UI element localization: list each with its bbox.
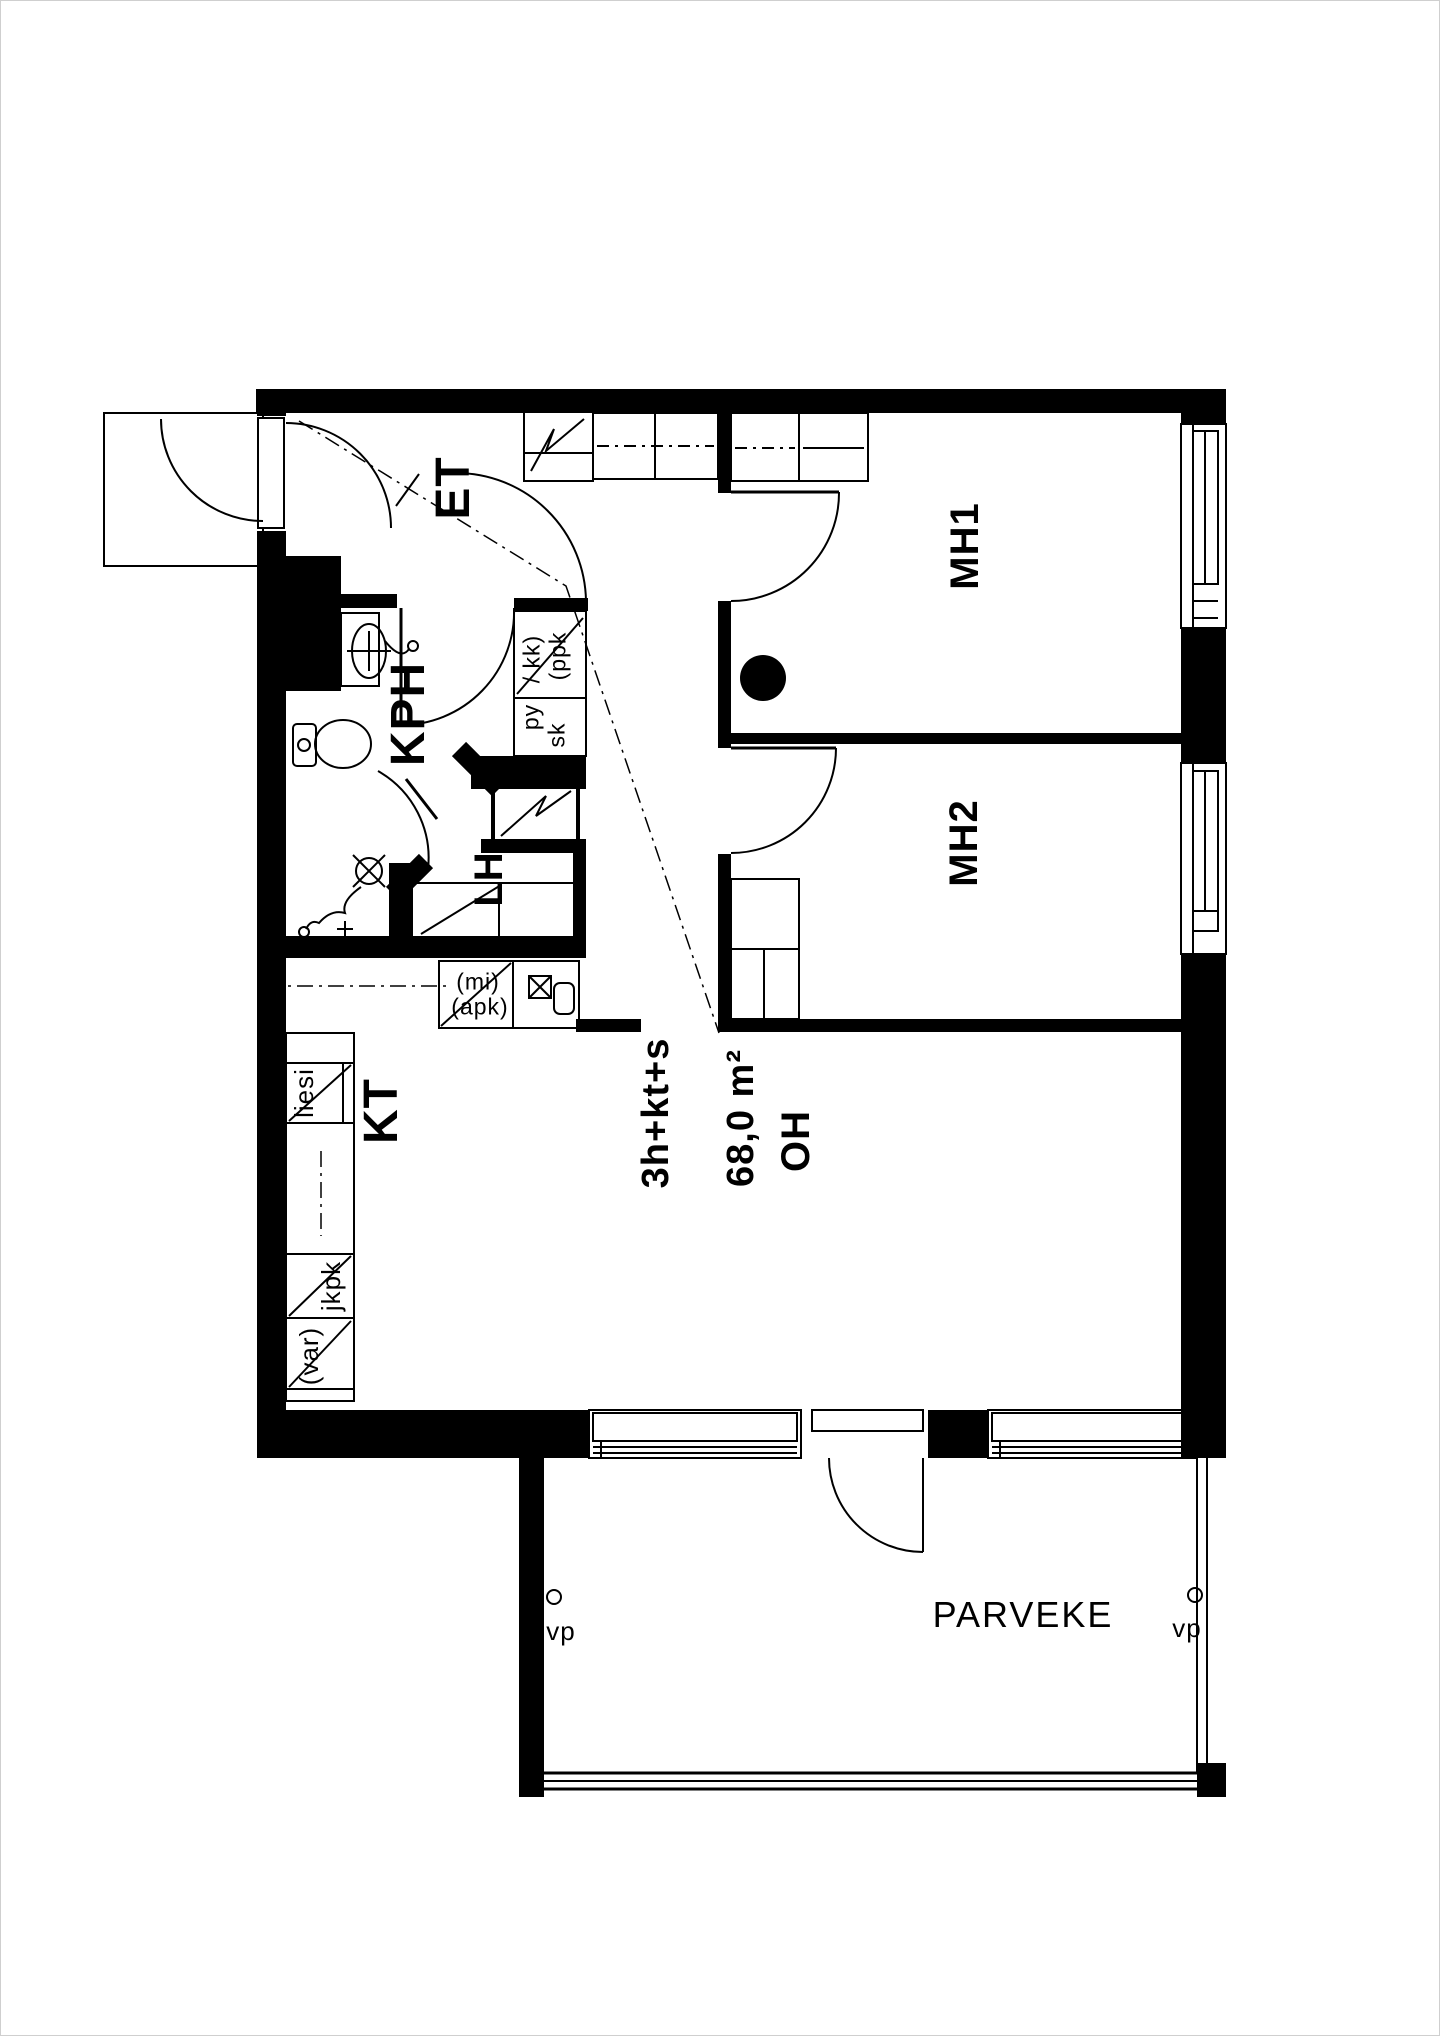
mh1-door-arc [731,492,839,601]
washbasin-drain [408,641,418,651]
wall-corridor-mh2-lower [718,854,731,1032]
window-oh-right-sill [992,1413,1191,1441]
window-oh-left [589,1410,801,1458]
wall-right-pier-mid [1181,628,1226,763]
label-parveke: PARVEKE [933,1597,1114,1633]
label-layout-type: 3h+kt+s [637,1038,675,1189]
wall-mh1-mh2 [718,733,1181,744]
balcony-drain-left [547,1590,561,1604]
toilet-icon [315,720,371,768]
label-mh2: MH2 [944,799,984,886]
label-kt: KT [358,1078,406,1144]
floor-plan-drawing [1,1,1440,2036]
wall-left [257,531,286,1458]
wall-diagonal-stub-upper [459,749,499,789]
wall-kph-lh-bottom [285,936,586,958]
balcony-drain-right [1188,1588,1202,1602]
wall-lh-right [573,844,586,958]
section-line-tick [396,474,419,506]
shower-hose [306,887,361,929]
label-apk: (apk) [451,996,508,1019]
label-oh: OH [776,1110,816,1172]
label-vp-right: vp [1172,1615,1201,1641]
entry-door-leaf [258,418,284,528]
window-mh2 [1181,763,1226,954]
label-liesi: liesi [291,1068,317,1118]
electrical-cabinet-zigzag-icon [531,419,584,471]
label-var: (var) [296,1327,322,1385]
kitchen-sink-basin [554,983,574,1014]
wall-right-top-corner [1181,389,1226,424]
wall-bottom-left [263,1410,589,1458]
label-lh: LH [469,851,509,906]
label-mi: (mi) [456,971,500,994]
balcony-door-sill [812,1410,923,1431]
mh2-door-arc [731,748,836,853]
wall-corridor-mh1-upper [718,413,731,493]
shower-head [299,927,309,937]
label-ppk: (ppk [547,632,570,681]
wall-kph-top [285,594,397,608]
label-vp-left: vp [546,1618,575,1644]
label-sk: sk [546,723,569,748]
wall-top [256,389,1226,413]
entry-landing-outline [104,413,263,566]
wall-balcony-left [519,1458,544,1797]
label-py: py [520,704,543,730]
wall-bottom-right-corner [1195,1410,1226,1458]
window-mh1 [1181,424,1226,628]
wall-shaft-block [284,556,341,691]
wall-bottom-pier [928,1410,988,1458]
wall-closet-cap [514,598,588,611]
window-oh-right [988,1410,1195,1458]
label-area: 68,0 m² [722,1049,760,1187]
column [740,655,786,701]
wall-left-upper [257,389,286,416]
sauna-door-arc [378,771,429,869]
window-oh-left-sill [593,1413,797,1441]
sauna-stove-zigzag-icon [501,791,571,836]
floor-plan-sheet: ET KPH LH KT MH1 MH2 3h+kt+s 68,0 m² OH … [0,0,1440,2036]
label-jkpk: jkpk [318,1261,344,1311]
wall-mh2-oh [718,1019,1181,1032]
wall-corridor-mid [718,601,731,748]
wall-right-pier-low [1181,954,1226,1458]
entry-door-arc-in [286,423,391,528]
toilet-cistern [293,724,316,766]
label-kk: / kk) [521,635,544,683]
wall-stub-kitchen [576,1019,641,1032]
label-kph: KPH [385,662,433,766]
entry-door-arc-out [161,419,263,521]
balcony-door-arc [829,1458,923,1552]
label-mh1: MH1 [945,502,985,589]
label-et: ET [430,456,478,519]
toilet-button [298,739,310,751]
electrical-cabinet-box [524,411,593,481]
